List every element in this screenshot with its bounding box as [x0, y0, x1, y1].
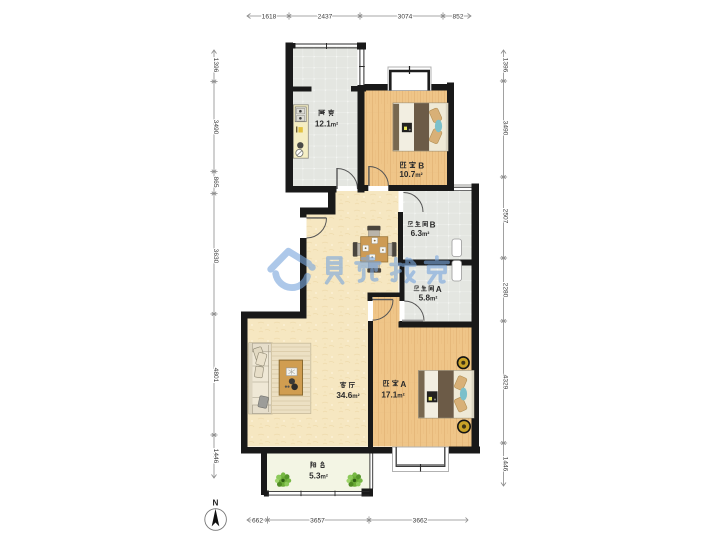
svg-text:2437: 2437	[318, 14, 333, 21]
svg-text:865: 865	[212, 176, 219, 187]
svg-text:A: A	[436, 285, 442, 294]
svg-text:1618: 1618	[262, 14, 277, 21]
svg-text:3490: 3490	[212, 120, 219, 135]
svg-text:4801: 4801	[212, 368, 219, 383]
svg-text:B: B	[430, 220, 436, 229]
svg-text:3074: 3074	[398, 14, 413, 21]
svg-text:1446: 1446	[212, 449, 219, 464]
svg-text:3657: 3657	[310, 518, 325, 525]
svg-text:1446: 1446	[502, 457, 509, 472]
svg-text:2280: 2280	[502, 283, 509, 298]
svg-text:N: N	[213, 499, 219, 508]
svg-text:3490: 3490	[502, 121, 509, 136]
svg-text:1396: 1396	[212, 58, 219, 73]
svg-text:1396: 1396	[502, 58, 509, 73]
svg-text:4329: 4329	[502, 375, 509, 390]
svg-text:2507: 2507	[502, 209, 509, 224]
svg-text:852: 852	[452, 14, 463, 21]
svg-text:B: B	[418, 162, 424, 171]
svg-text:3662: 3662	[413, 518, 428, 525]
svg-text:A: A	[400, 380, 406, 389]
svg-text:3630: 3630	[212, 249, 219, 264]
svg-text:662: 662	[252, 518, 263, 525]
